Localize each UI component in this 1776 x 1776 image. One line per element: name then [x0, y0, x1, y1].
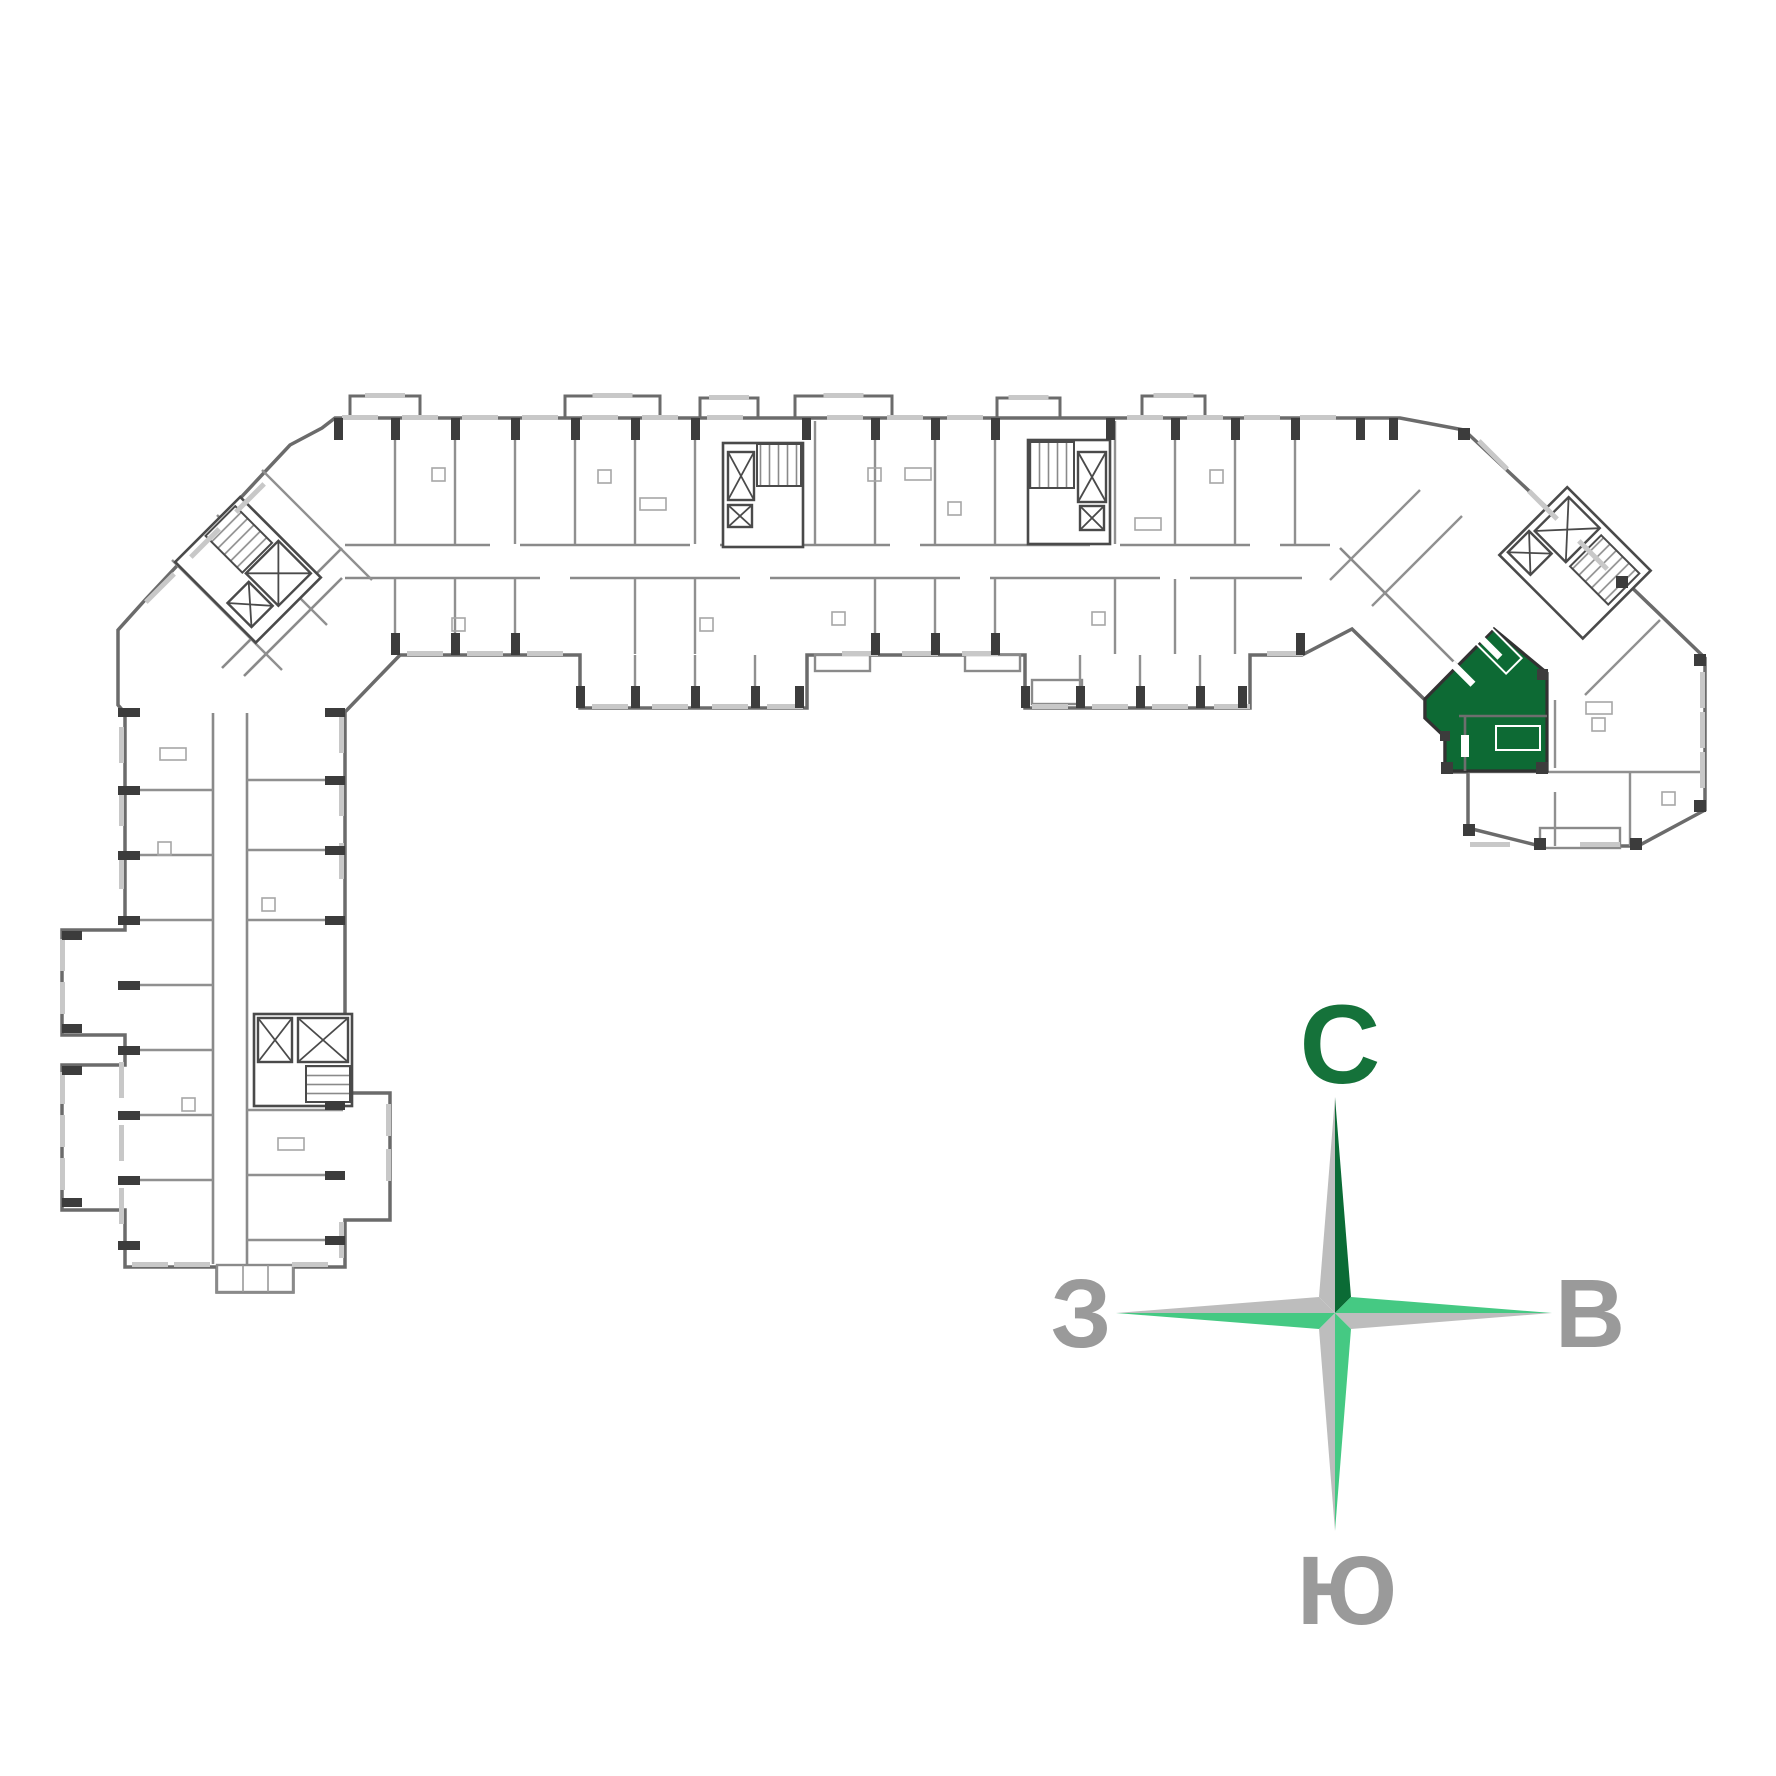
core-central-left: [723, 443, 803, 547]
building-outline: [62, 418, 1705, 1292]
compass-label-west: З: [1051, 1259, 1112, 1368]
core-central-right: [1028, 440, 1110, 544]
compass-south-arrow: [1319, 1313, 1351, 1531]
compass-east-arrow: [1335, 1297, 1552, 1329]
compass-label-north: С: [1300, 982, 1381, 1107]
building-floor-plan: [60, 393, 1706, 1292]
floor-plan-page: С З В Ю: [0, 0, 1776, 1776]
balconies: [217, 655, 1620, 1292]
compass-north-arrow: [1319, 1097, 1351, 1313]
compass-west-arrow: [1116, 1297, 1335, 1329]
compass-rose: С З В Ю: [1051, 982, 1625, 1645]
compass-label-south: Ю: [1297, 1536, 1397, 1645]
compass-label-east: В: [1555, 1259, 1625, 1368]
floor-plan-canvas: С З В Ю: [0, 0, 1776, 1776]
core-tower: [254, 1014, 352, 1106]
